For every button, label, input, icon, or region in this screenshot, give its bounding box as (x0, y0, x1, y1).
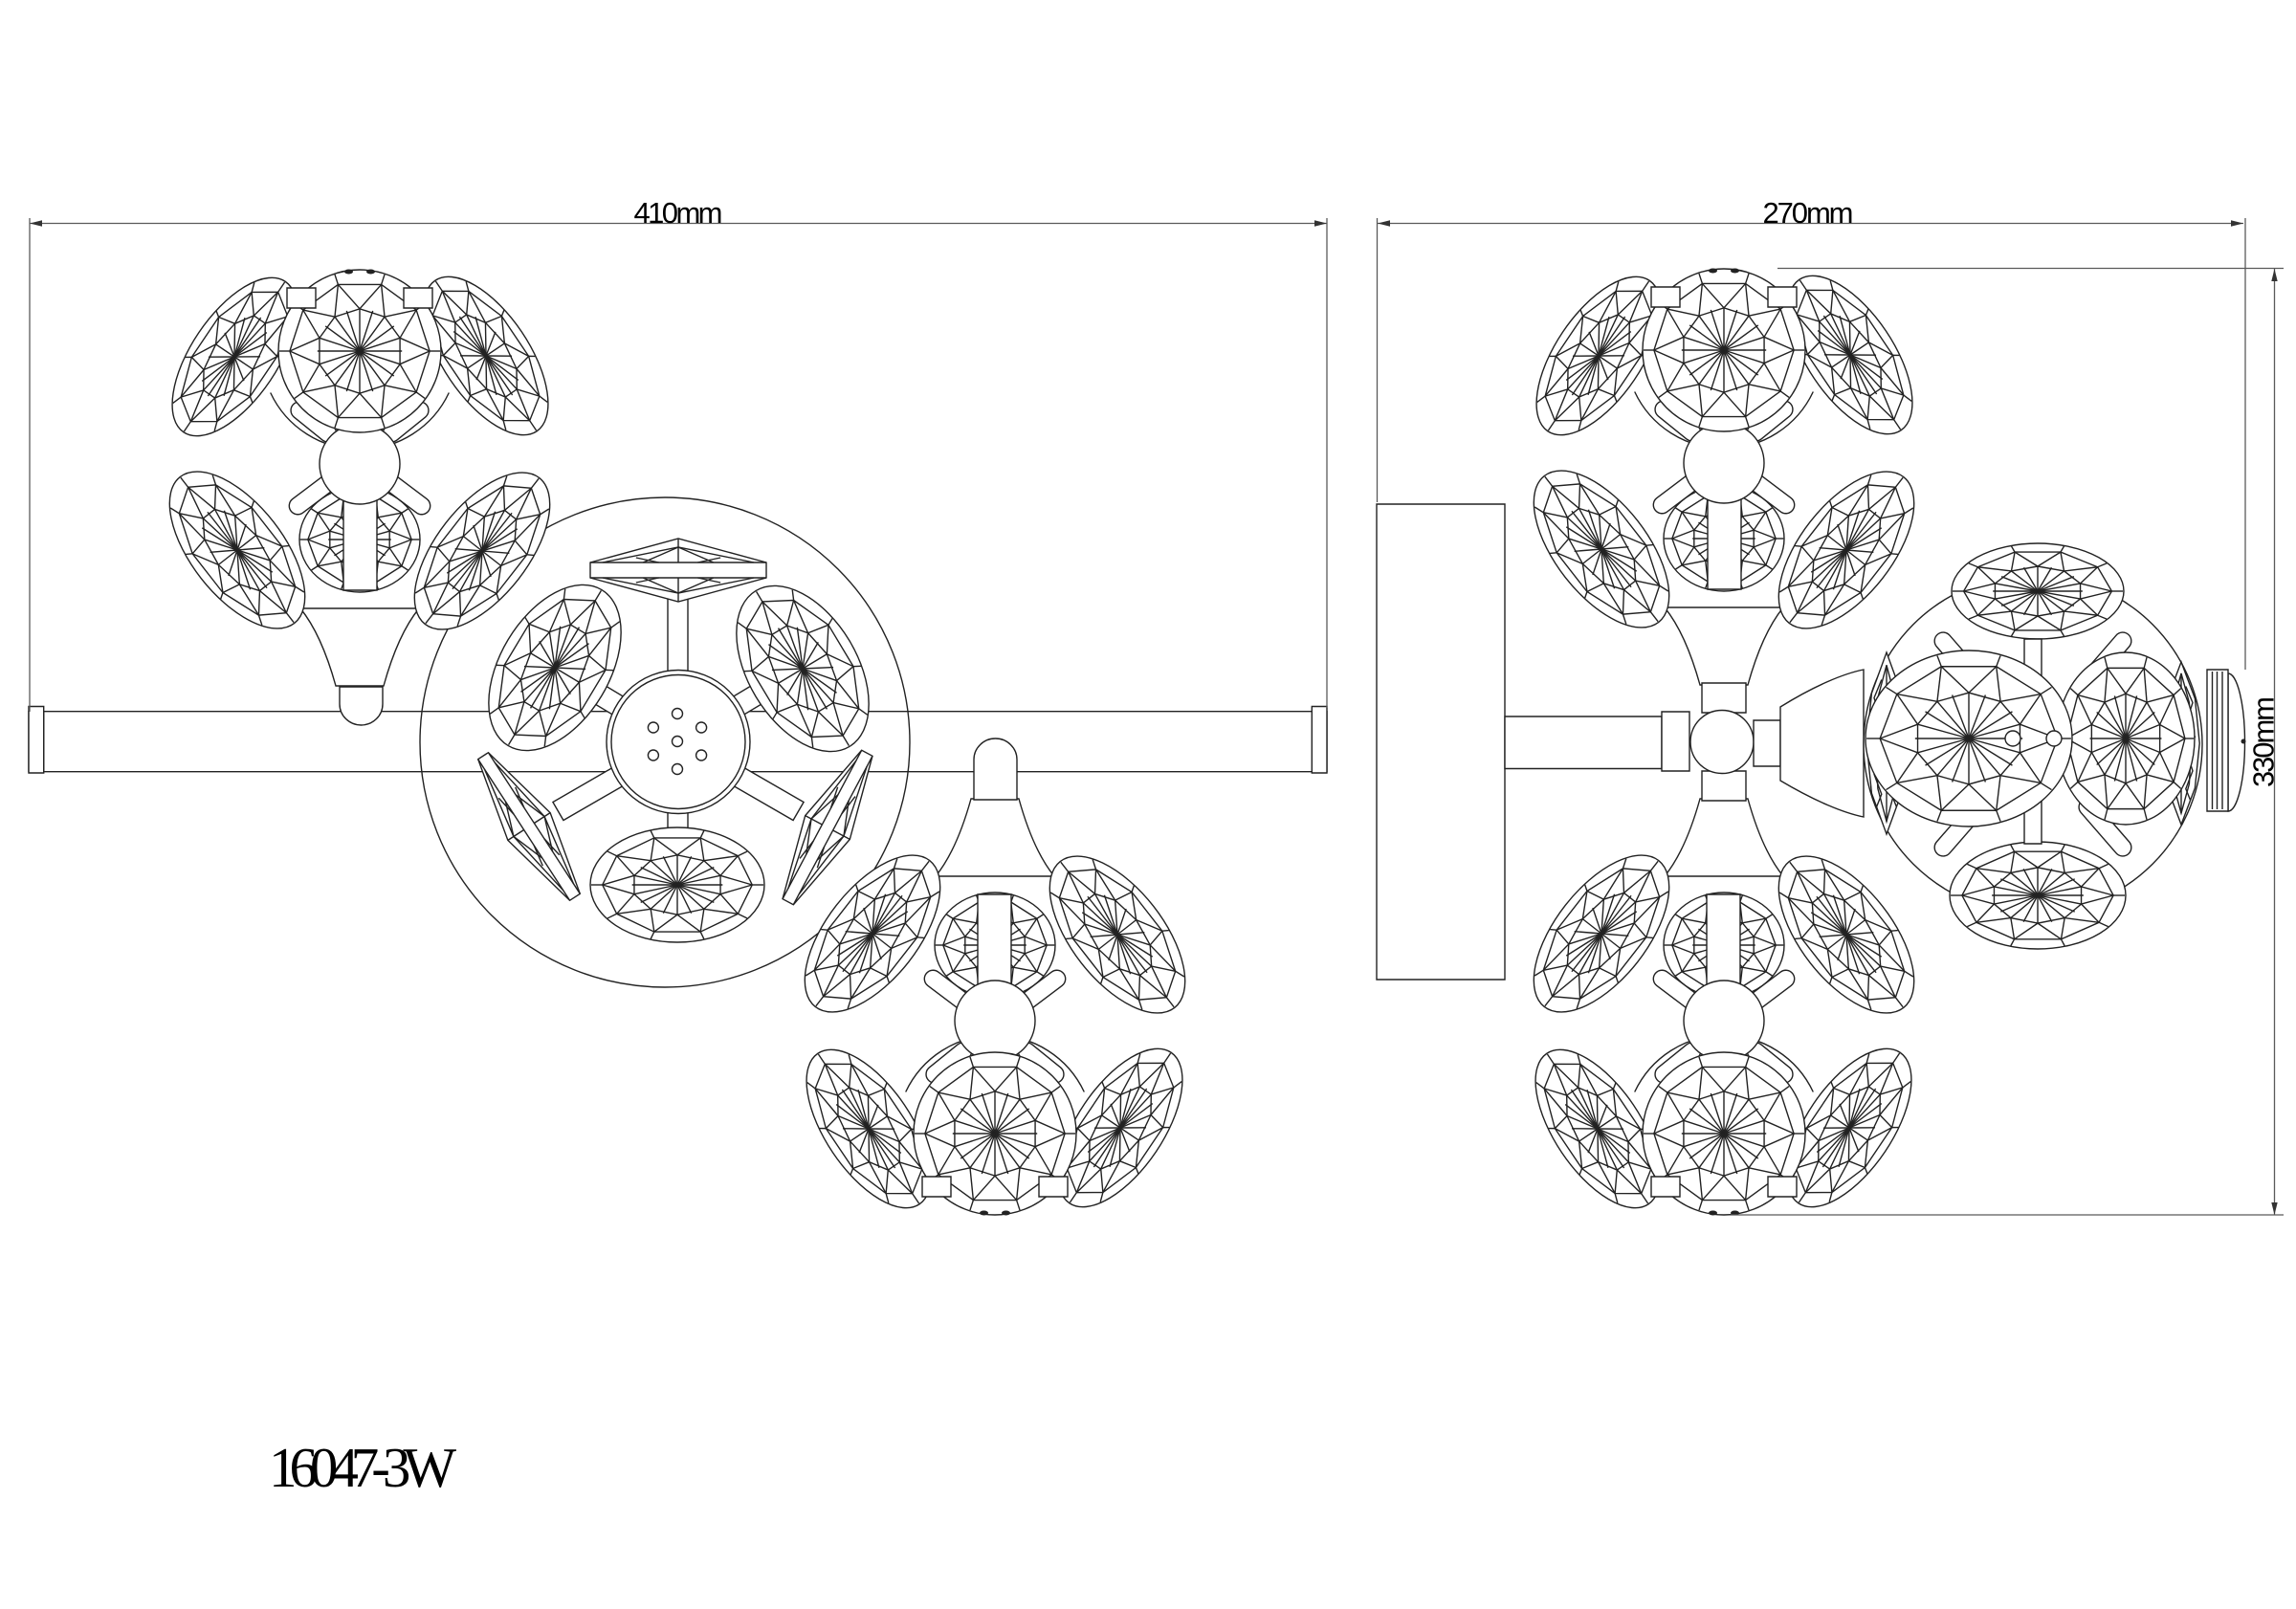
svg-text:410mm: 410mm (634, 196, 723, 230)
svg-text:330mm: 330mm (2247, 696, 2281, 787)
svg-text:270mm: 270mm (1763, 196, 1854, 230)
svg-text:16047-3W: 16047-3W (269, 1436, 456, 1499)
